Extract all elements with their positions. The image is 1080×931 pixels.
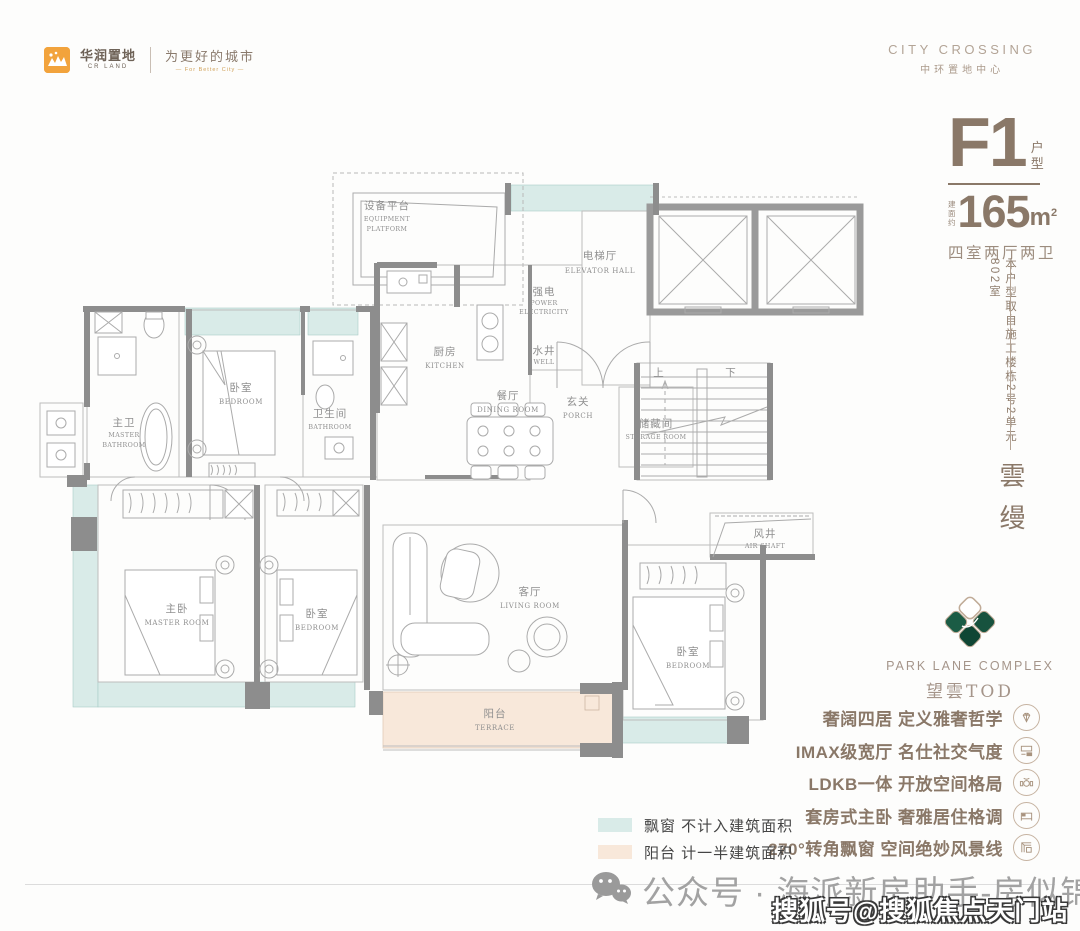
- legend-label: 阳台 计一半建筑面积: [644, 842, 793, 863]
- terrace-swatch: [598, 845, 632, 859]
- room-label-elevator-hall-zh: 电梯厅: [583, 249, 618, 262]
- room-label-dining-zh: 餐厅: [497, 389, 520, 402]
- stairs-down-label: 下: [725, 367, 737, 379]
- cr-land-logo-icon: [44, 47, 70, 73]
- room-label-kitchen-en: KITCHEN: [425, 362, 465, 370]
- room-label-storage-en: STORAGE ROOM: [626, 434, 687, 441]
- room-label-master-bath-zh: 主卫: [113, 417, 136, 429]
- wechat-icon: [590, 870, 632, 911]
- brand-name-zh: 望雲TOD: [860, 677, 1080, 702]
- dining-icon: [1013, 769, 1040, 796]
- logo-divider: [150, 47, 151, 73]
- series-name: 雲缦: [992, 462, 1029, 546]
- room-label-porch-zh: 玄关: [567, 395, 590, 408]
- room-label-equipment-en2: PLATFORM: [367, 226, 408, 233]
- dining-furniture: [467, 403, 553, 479]
- room-label-dining-en: DINING ROOM: [477, 406, 539, 414]
- room-label-bedroom-right-zh: 卧室: [677, 645, 700, 658]
- room-label-well-zh: 水井: [533, 344, 556, 357]
- room-label-well-en: WELL: [533, 359, 554, 366]
- legend-row-bay-window: 飘窗 不计入建筑面积: [598, 816, 793, 834]
- room-label-elevator-hall-en: ELEVATOR HALL: [565, 267, 635, 275]
- unit-info: F1 户 型 建面 约 165 m2 四室两厅两卫: [948, 110, 1044, 263]
- room-label-bedroom-top-en: BEDROOM: [219, 398, 263, 406]
- terrace-zone: [383, 692, 613, 748]
- feature-text: 套房式主卧 奢雅居住格调: [805, 803, 1003, 828]
- project-name-zh: 中环置地中心: [888, 61, 1036, 76]
- room-label-bedroom-top-zh: 卧室: [230, 381, 253, 394]
- unit-code: F1: [948, 110, 1026, 174]
- unit-type-char1: 户: [1031, 140, 1044, 156]
- developer-slogan-en: — For Better City —: [165, 67, 255, 73]
- bedroom-top-furniture: [188, 336, 275, 477]
- stairs-up-label: 上: [653, 367, 665, 379]
- screen-icon: [1013, 737, 1040, 764]
- legend-label: 飘窗 不计入建筑面积: [644, 815, 793, 836]
- room-label-porch-en: PORCH: [563, 412, 593, 420]
- room-label-bedroom-mid-en: BEDROOM: [295, 624, 339, 632]
- area-sup: 2: [1051, 207, 1057, 219]
- bed-icon: [1013, 802, 1040, 829]
- project-logo: CITY CROSSING 中环置地中心: [888, 42, 1036, 76]
- bedroom-mid-furniture: [260, 490, 359, 678]
- room-label-bedroom-mid-zh: 卧室: [306, 607, 329, 620]
- brand-name-en: PARK LANE COMPLEX: [860, 659, 1080, 673]
- sohu-watermark: 搜狐号@搜狐焦点天门站: [772, 891, 1068, 928]
- source-note-rule: [1010, 262, 1011, 450]
- room-label-equipment-zh: 设备平台: [364, 199, 410, 212]
- room-label-living-zh: 客厅: [519, 585, 542, 598]
- room-label-air-shaft-en: AIR SHAFT: [744, 543, 786, 550]
- room-label-equipment-en1: EQUIPMENT: [364, 216, 411, 223]
- elevator-shafts: [650, 207, 860, 313]
- bedroom-right-furniture: [633, 563, 744, 710]
- unit-type-char2: 型: [1031, 156, 1044, 172]
- room-label-power-en1: POWER: [530, 300, 557, 307]
- room-label-master-room-en: MASTER ROOM: [145, 619, 210, 627]
- diamond-icon: [1013, 704, 1040, 731]
- area-unit: m: [1030, 204, 1051, 231]
- bay-window-swatch: [598, 818, 632, 832]
- room-label-terrace-en: TERRACE: [475, 724, 515, 732]
- floor-plan: 设备平台 EQUIPMENT PLATFORM 厨房 KITCHEN 强电 PO…: [25, 145, 885, 795]
- floorplan-poster: { "header": { "logo_zh": "华润置地", "logo_e…: [0, 0, 1080, 931]
- corner-window-icon: [1013, 834, 1040, 861]
- area-value: 165: [958, 192, 1030, 233]
- brand-block: PARK LANE COMPLEX 望雲TOD: [860, 596, 1080, 702]
- room-label-living-en: LIVING ROOM: [500, 602, 560, 610]
- project-name-en: CITY CROSSING: [888, 42, 1036, 57]
- room-label-master-bath-en2: BATHROOM: [102, 442, 145, 449]
- bathroom2-fixtures: [313, 341, 353, 459]
- room-label-power-en2: ELECTRICITY: [519, 309, 569, 316]
- room-label-master-room-zh: 主卧: [166, 602, 189, 615]
- room-label-air-shaft-zh: 风井: [754, 527, 777, 540]
- room-label-bedroom-right-en: BEDROOM: [666, 662, 710, 670]
- room-label-terrace-zh: 阳台: [484, 707, 507, 720]
- area-prefix-1: 建面: [948, 200, 956, 218]
- plan-legend: 飘窗 不计入建筑面积 阳台 计一半建筑面积: [598, 816, 793, 870]
- clover-logo-icon: [944, 596, 996, 653]
- room-label-bath2-en: BATHROOM: [308, 424, 351, 431]
- developer-logo: 华润置地 CR LAND 为更好的城市 — For Better City —: [44, 46, 255, 73]
- developer-name-en: CR LAND: [80, 64, 136, 70]
- room-label-bath2-zh: 卫生间: [313, 407, 348, 420]
- master-room-furniture: [123, 490, 253, 678]
- legend-row-terrace: 阳台 计一半建筑面积: [598, 843, 793, 861]
- room-label-kitchen-zh: 厨房: [434, 345, 457, 358]
- developer-name-zh: 华润置地: [80, 49, 136, 63]
- source-note: 本户型取自施工楼栋2号2单元802室: [986, 258, 1018, 458]
- area-prefix-2: 约: [948, 218, 956, 227]
- developer-slogan-zh: 为更好的城市: [165, 46, 255, 65]
- room-label-master-bath-en1: MASTER: [108, 432, 139, 439]
- room-label-power-zh: 强电: [533, 285, 556, 298]
- room-label-storage-zh: 储藏间: [639, 417, 674, 430]
- feature-text: 270°转角飘窗 空间绝妙风景线: [768, 835, 1003, 860]
- unit-divider: [948, 183, 1040, 185]
